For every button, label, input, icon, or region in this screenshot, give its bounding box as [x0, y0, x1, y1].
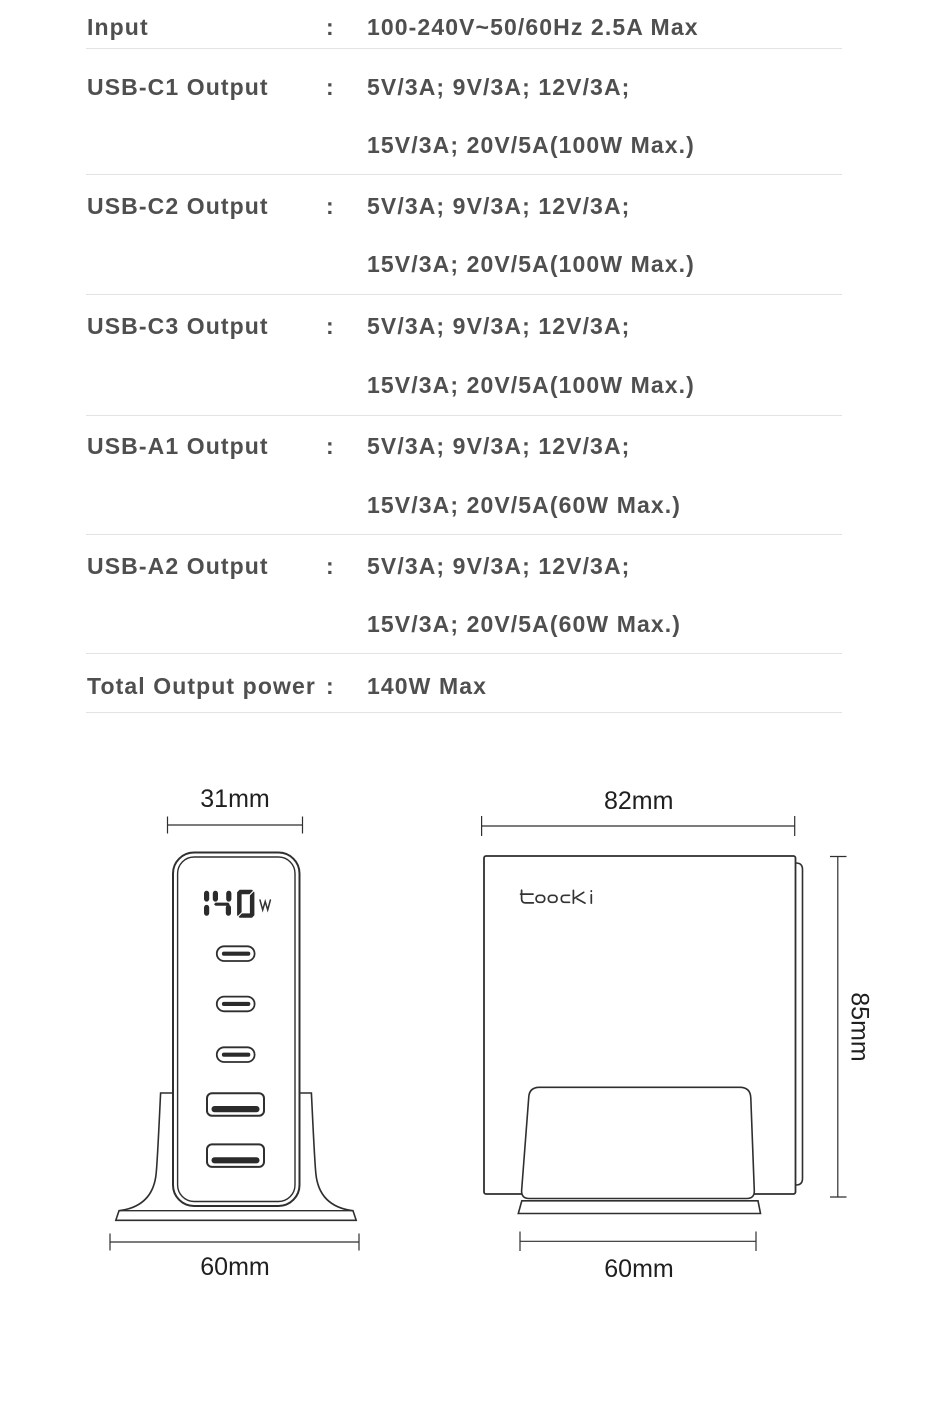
svg-text:60mm: 60mm: [200, 1253, 269, 1281]
svg-text:82mm: 82mm: [604, 787, 673, 815]
svg-text:85mm: 85mm: [846, 992, 874, 1061]
svg-text:31mm: 31mm: [200, 785, 269, 813]
svg-text:60mm: 60mm: [604, 1255, 673, 1283]
